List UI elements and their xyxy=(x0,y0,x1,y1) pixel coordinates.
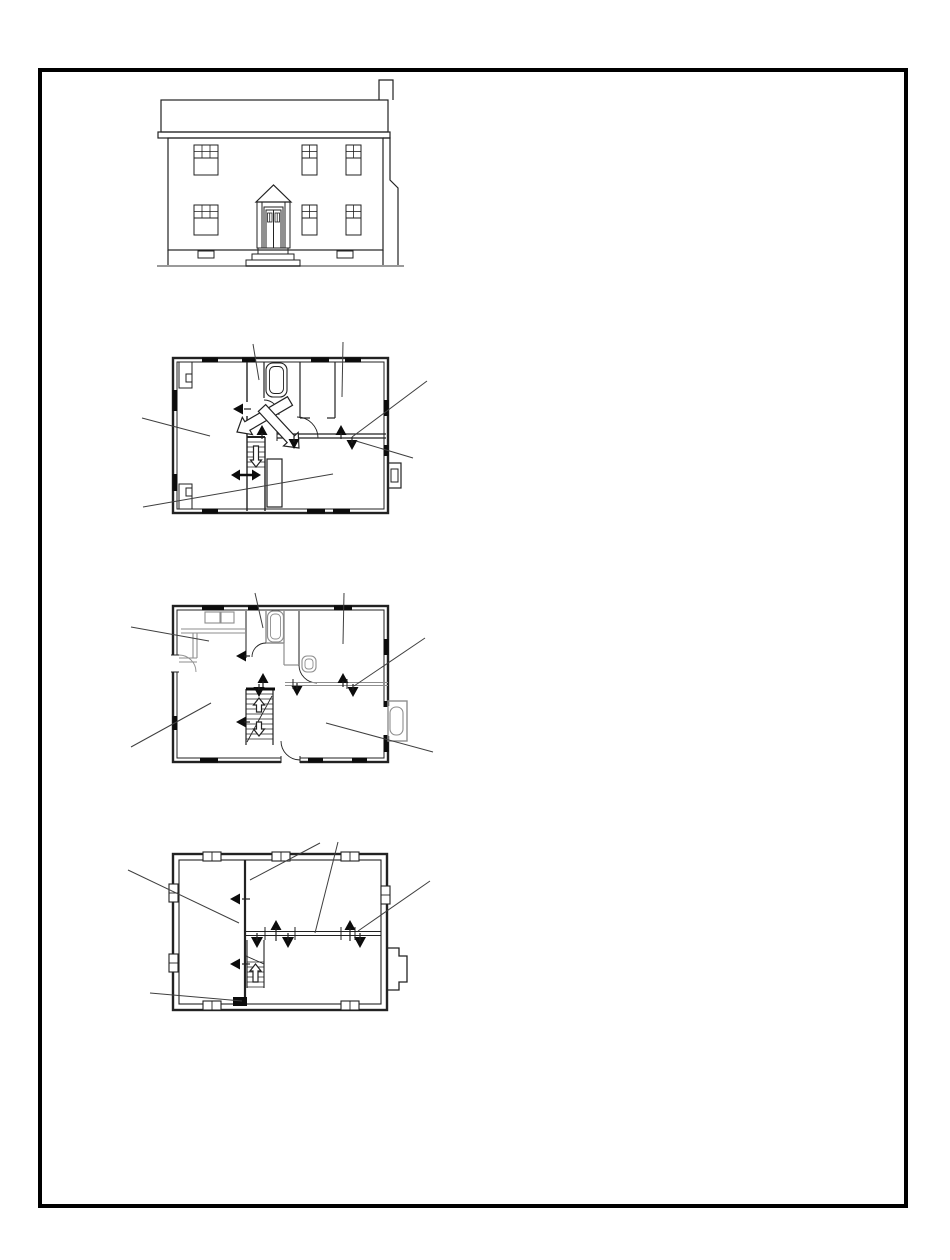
first-floor-plan xyxy=(131,593,433,765)
basement-plan xyxy=(128,842,430,1010)
page-border xyxy=(40,70,906,1206)
page-drawing xyxy=(0,0,950,1260)
house-front-elevation xyxy=(157,80,404,266)
document-page xyxy=(0,0,950,1260)
second-floor-plan xyxy=(142,342,427,513)
